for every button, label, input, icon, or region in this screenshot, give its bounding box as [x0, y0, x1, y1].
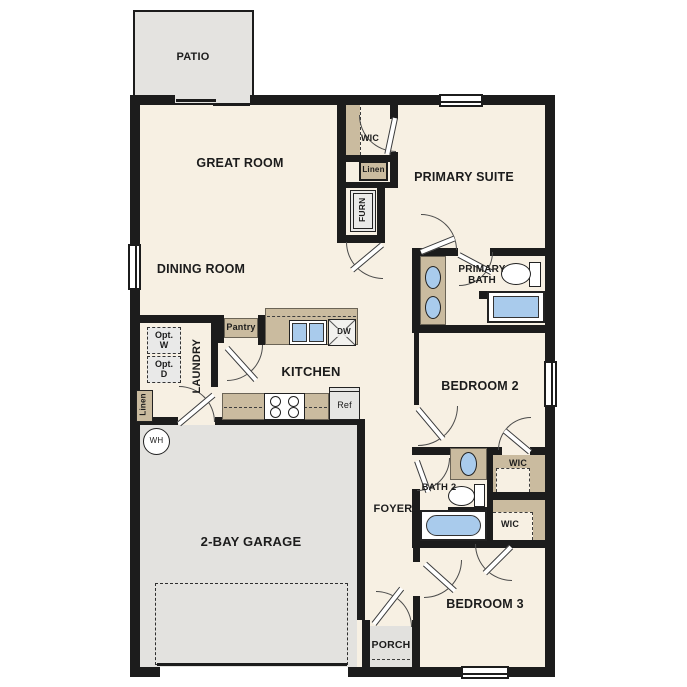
- wall: [130, 95, 140, 246]
- primary-bath-label: PRIMARY BATH: [447, 264, 517, 286]
- porch-label: PORCH: [361, 640, 421, 652]
- patio-label: PATIO: [153, 51, 233, 63]
- wic-primary-label: WIC: [352, 133, 388, 143]
- wall: [216, 315, 224, 343]
- wall: [413, 596, 420, 622]
- great-room-label: GREAT ROOM: [195, 156, 285, 170]
- garage-door-zone: [155, 583, 348, 665]
- pantry-label: Pantry: [224, 322, 258, 332]
- wall: [490, 248, 545, 256]
- stove-burner: [288, 407, 299, 418]
- window: [439, 94, 483, 107]
- wic-bedroom3-label: WIC: [490, 519, 530, 529]
- wall: [479, 291, 487, 299]
- wic-bedroom2-floor: [496, 468, 530, 492]
- linen-hall-label: Linen: [359, 166, 388, 175]
- wall: [414, 333, 419, 405]
- toilet-tank: [474, 484, 485, 507]
- stove-burner: [270, 396, 281, 407]
- sink: [425, 266, 441, 289]
- wall: [412, 248, 420, 333]
- wall: [487, 492, 545, 500]
- sink: [460, 452, 477, 476]
- wall: [250, 95, 441, 105]
- wic-primary-shelf: [346, 105, 360, 155]
- sliding-door: [176, 99, 216, 102]
- sliding-door: [213, 103, 250, 106]
- refrigerator-line: [330, 391, 359, 392]
- wall: [481, 95, 555, 105]
- primary-suite-label: PRIMARY SUITE: [414, 170, 514, 184]
- sink: [425, 296, 441, 319]
- kitchen-sink: [289, 320, 327, 345]
- laundry-label: LAUNDRY: [191, 326, 203, 406]
- garage-label: 2-BAY GARAGE: [200, 535, 302, 550]
- garage-door-line: [157, 663, 347, 666]
- bathtub: [420, 510, 487, 541]
- porch-edge-line: [372, 659, 410, 660]
- wall: [130, 288, 140, 677]
- furnace-label: FURN: [358, 187, 368, 233]
- foyer-label: FOYER: [358, 503, 428, 515]
- wall: [507, 667, 555, 677]
- shower: [487, 291, 545, 323]
- wall: [412, 325, 545, 333]
- optional-washer: Opt. W: [147, 327, 181, 354]
- wall: [545, 405, 555, 677]
- kitchen-label: KITCHEN: [261, 365, 361, 380]
- counter-line: [267, 316, 356, 317]
- dining-room-label: DINING ROOM: [156, 262, 246, 276]
- window: [461, 666, 509, 679]
- wall: [140, 315, 220, 323]
- wall: [413, 548, 420, 562]
- wall: [545, 95, 555, 361]
- water-heater-label: WH: [143, 437, 170, 446]
- wall: [377, 188, 385, 241]
- optional-dryer-label: Opt. D: [151, 360, 177, 380]
- floor-plan: Opt. W Opt. D PATIO GREAT ROOM DINING RO…: [0, 0, 687, 687]
- wall: [337, 105, 346, 241]
- wall: [530, 447, 545, 455]
- stove-burner: [270, 407, 281, 418]
- bedroom3-label: BEDROOM 3: [420, 597, 550, 611]
- bedroom2-label: BEDROOM 2: [415, 379, 545, 393]
- dishwasher-label: DW: [334, 328, 354, 337]
- optional-washer-label: Opt. W: [151, 331, 177, 351]
- window: [128, 244, 141, 290]
- wic-bedroom2-label: WIC: [498, 458, 538, 468]
- bath2-label: BATH 2: [420, 483, 458, 494]
- stove: [264, 393, 305, 420]
- window: [544, 361, 557, 407]
- linen-laundry-label: Linen: [140, 379, 149, 429]
- refrigerator-label: Ref: [329, 400, 360, 410]
- wall: [130, 667, 160, 677]
- wall: [346, 182, 398, 188]
- stove-burner: [288, 396, 299, 407]
- wall: [357, 419, 365, 620]
- optional-dryer: Opt. D: [147, 356, 181, 383]
